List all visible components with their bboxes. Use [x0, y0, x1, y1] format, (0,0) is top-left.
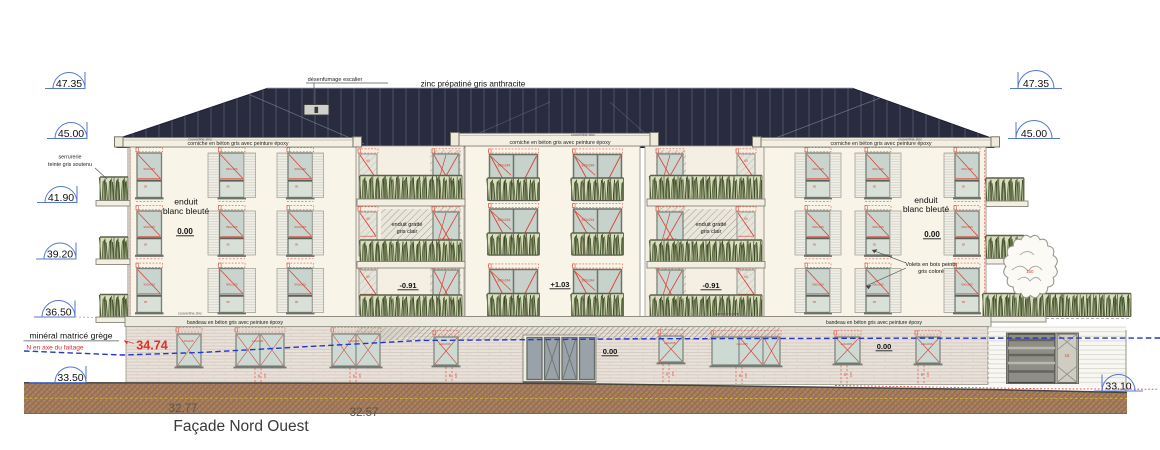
svg-text:60: 60: [366, 275, 370, 279]
svg-text:140x095: 140x095: [252, 339, 264, 343]
svg-text:95: 95: [352, 374, 356, 378]
svg-text:45.00: 45.00: [1021, 128, 1047, 140]
svg-text:enduit gratté: enduit gratté: [695, 222, 726, 228]
svg-text:60: 60: [744, 275, 748, 279]
svg-text:teinte gris soutenu: teinte gris soutenu: [48, 162, 92, 168]
svg-text:105: 105: [671, 371, 675, 376]
svg-text:140x095: 140x095: [439, 342, 451, 346]
svg-text:45.00: 45.00: [58, 128, 84, 140]
svg-text:couvertine zinc: couvertine zinc: [715, 312, 739, 316]
svg-text:300x244: 300x244: [581, 164, 594, 168]
svg-text:Façade Nord Ouest: Façade Nord Ouest: [173, 418, 309, 435]
svg-text:0.00: 0.00: [603, 347, 618, 356]
svg-text:990x135: 990x135: [872, 225, 884, 229]
svg-text:150: 150: [1026, 269, 1034, 274]
svg-text:blanc bleuté: blanc bleuté: [163, 206, 210, 216]
svg-text:95: 95: [962, 300, 966, 304]
svg-text:95: 95: [873, 300, 877, 304]
svg-text:300x244: 300x244: [581, 279, 594, 283]
svg-text:95: 95: [813, 185, 817, 189]
svg-text:32.57: 32.57: [350, 407, 379, 419]
svg-text:+1.03: +1.03: [551, 280, 570, 289]
svg-text:990x135: 990x135: [961, 167, 973, 171]
svg-text:39.20: 39.20: [47, 249, 73, 261]
svg-text:95: 95: [226, 185, 230, 189]
svg-text:minéral matricé grège: minéral matricé grège: [29, 331, 112, 341]
svg-text:95: 95: [144, 300, 148, 304]
svg-text:gris coloré: gris coloré: [918, 269, 944, 275]
svg-text:désenfumage escalier: désenfumage escalier: [308, 77, 363, 83]
svg-text:990x135: 990x135: [812, 167, 824, 171]
svg-text:95: 95: [257, 374, 261, 378]
svg-text:47.35: 47.35: [56, 78, 82, 90]
svg-text:105: 105: [744, 373, 748, 378]
svg-text:60: 60: [366, 159, 370, 163]
svg-text:990x135: 990x135: [872, 167, 884, 171]
svg-text:990x135: 990x135: [812, 225, 824, 229]
svg-text:95: 95: [295, 300, 299, 304]
svg-text:105: 105: [358, 373, 362, 378]
svg-text:95: 95: [295, 242, 299, 246]
svg-text:990x135: 990x135: [961, 282, 973, 286]
svg-text:990x135: 990x135: [226, 167, 238, 171]
svg-text:95: 95: [962, 185, 966, 189]
svg-text:33.50: 33.50: [57, 372, 83, 384]
svg-text:serrurerie: serrurerie: [58, 155, 81, 161]
svg-text:95: 95: [873, 185, 877, 189]
svg-text:140x095: 140x095: [840, 342, 852, 346]
svg-text:990x135: 990x135: [294, 167, 306, 171]
svg-text:990x135: 990x135: [961, 225, 973, 229]
svg-text:990x135: 990x135: [872, 282, 884, 286]
svg-text:95: 95: [665, 372, 669, 376]
svg-text:0.00: 0.00: [177, 227, 193, 236]
svg-text:105: 105: [263, 373, 267, 378]
svg-text:-0.91: -0.91: [399, 281, 416, 290]
svg-text:95: 95: [448, 374, 452, 378]
svg-text:32.77: 32.77: [169, 403, 198, 415]
svg-text:95: 95: [226, 300, 230, 304]
svg-text:95: 95: [144, 242, 148, 246]
svg-text:15: 15: [1065, 353, 1070, 358]
svg-text:105: 105: [926, 372, 930, 377]
svg-text:300x244: 300x244: [497, 218, 510, 222]
svg-text:95: 95: [873, 242, 877, 246]
svg-text:300x244: 300x244: [497, 279, 510, 283]
svg-text:Volets en bois peints: Volets en bois peints: [905, 262, 957, 268]
svg-text:990x135: 990x135: [294, 282, 306, 286]
svg-text:60: 60: [744, 159, 748, 163]
svg-text:95: 95: [813, 300, 817, 304]
svg-text:corniche en béton gris avec pe: corniche en béton gris avec peinture épo…: [831, 141, 932, 147]
svg-text:33.10: 33.10: [1105, 381, 1131, 393]
svg-text:60: 60: [366, 217, 370, 221]
svg-text:990x135: 990x135: [143, 167, 155, 171]
svg-text:95: 95: [962, 242, 966, 246]
svg-text:990x135: 990x135: [143, 282, 155, 286]
svg-text:34.74: 34.74: [136, 339, 168, 353]
svg-text:corniche en béton gris avec pe: corniche en béton gris avec peinture épo…: [188, 141, 289, 147]
svg-text:990x135: 990x135: [294, 225, 306, 229]
svg-text:140x095: 140x095: [736, 342, 748, 346]
svg-text:140x095: 140x095: [348, 339, 360, 343]
svg-text:couvertine zinc: couvertine zinc: [571, 133, 595, 137]
svg-text:990x135: 990x135: [226, 225, 238, 229]
svg-text:300x244: 300x244: [581, 218, 594, 222]
svg-text:60: 60: [744, 217, 748, 221]
svg-text:140x095: 140x095: [182, 339, 194, 343]
svg-text:95: 95: [295, 185, 299, 189]
svg-text:bandeau en béton gris avec pei: bandeau en béton gris avec peinture épox…: [826, 320, 922, 326]
svg-text:corniche en béton gris avec pe: corniche en béton gris avec peinture épo…: [510, 140, 611, 146]
svg-text:95: 95: [843, 373, 847, 377]
svg-text:95: 95: [738, 374, 742, 378]
svg-text:95: 95: [813, 242, 817, 246]
svg-text:95: 95: [920, 373, 924, 377]
svg-text:gris clair: gris clair: [701, 229, 722, 235]
svg-text:-0.91: -0.91: [702, 281, 719, 290]
svg-text:enduit gratté: enduit gratté: [391, 222, 422, 228]
svg-text:47.35: 47.35: [1023, 78, 1049, 90]
svg-text:990x135: 990x135: [812, 282, 824, 286]
svg-text:0.00: 0.00: [924, 230, 940, 239]
svg-text:zinc prépatiné gris anthracite: zinc prépatiné gris anthracite: [421, 80, 526, 89]
svg-text:300x244: 300x244: [497, 164, 510, 168]
svg-text:95: 95: [226, 242, 230, 246]
svg-text:gris clair: gris clair: [397, 229, 418, 235]
svg-text:couvertine zinc: couvertine zinc: [178, 312, 202, 316]
svg-text:105: 105: [849, 372, 853, 377]
svg-text:36.50: 36.50: [45, 307, 71, 319]
svg-text:990x135: 990x135: [143, 225, 155, 229]
svg-text:105: 105: [454, 373, 458, 378]
svg-text:N en axe du faitage: N en axe du faitage: [26, 345, 84, 352]
svg-text:140x095: 140x095: [664, 341, 676, 345]
svg-text:blanc bleuté: blanc bleuté: [903, 204, 950, 214]
svg-text:140x095: 140x095: [921, 342, 933, 346]
svg-text:0.00: 0.00: [877, 342, 892, 351]
svg-text:990x135: 990x135: [226, 282, 238, 286]
svg-text:95: 95: [144, 185, 148, 189]
svg-text:bandeau en béton gris avec pei: bandeau en béton gris avec peinture épox…: [187, 320, 283, 326]
svg-text:41.90: 41.90: [48, 192, 74, 204]
svg-text:enduit: enduit: [174, 197, 198, 207]
